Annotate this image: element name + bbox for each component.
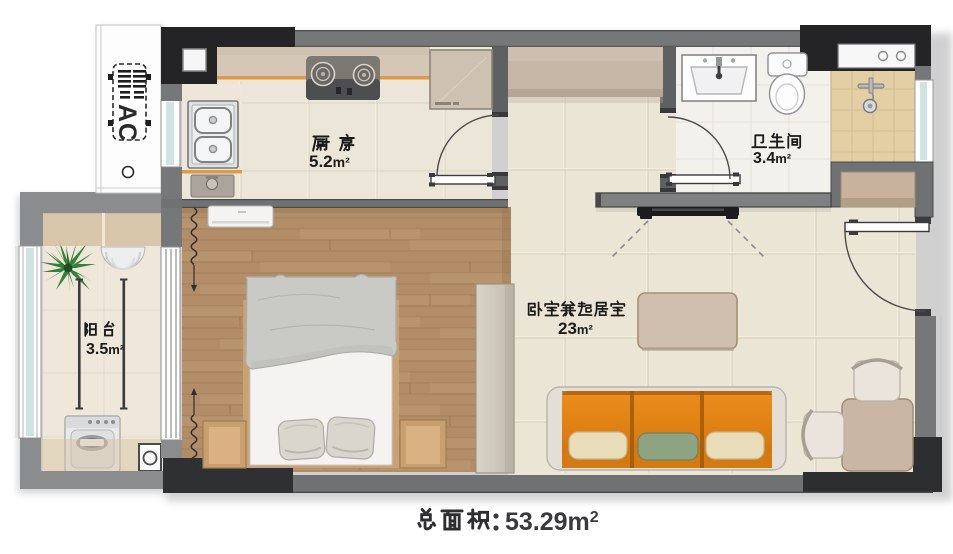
- svg-text:53.29m2: 53.29m2: [505, 508, 599, 536]
- svg-text:AC: AC: [113, 104, 141, 142]
- svg-text:23m²: 23m²: [558, 319, 593, 338]
- svg-text:3.5m²: 3.5m²: [86, 341, 125, 358]
- svg-text:3.4m²: 3.4m²: [753, 150, 792, 167]
- svg-text:5.2m²: 5.2m²: [309, 152, 350, 171]
